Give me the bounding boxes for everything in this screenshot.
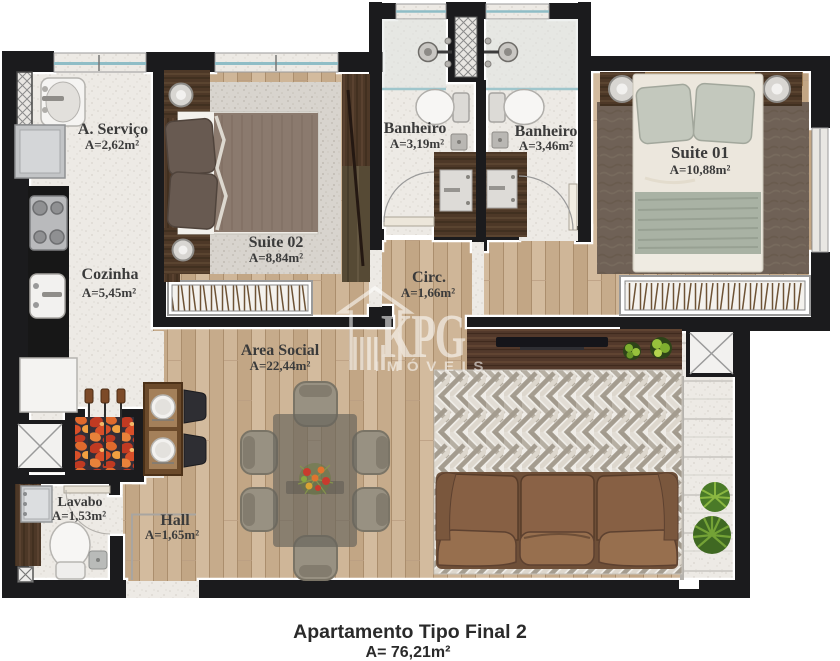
- svg-text:Suite 01: Suite 01: [671, 143, 729, 162]
- svg-text:A=8,84m²: A=8,84m²: [249, 250, 303, 265]
- svg-text:A=3,46m²: A=3,46m²: [519, 138, 573, 153]
- svg-text:A=2,62m²: A=2,62m²: [85, 137, 139, 152]
- svg-text:A=1,53m²: A=1,53m²: [52, 508, 106, 523]
- svg-text:Apartamento Tipo Final 2: Apartamento Tipo Final 2: [293, 621, 527, 643]
- svg-text:Suite 02: Suite 02: [249, 234, 304, 251]
- svg-text:A=3,19m²: A=3,19m²: [390, 136, 444, 151]
- svg-text:IMÓVEIS: IMÓVEIS: [375, 357, 491, 374]
- svg-text:Banheiro: Banheiro: [384, 120, 447, 137]
- svg-text:A= 76,21m²: A= 76,21m²: [366, 644, 451, 661]
- svg-text:A=5,45m²: A=5,45m²: [82, 285, 136, 300]
- svg-text:Area Social: Area Social: [241, 342, 320, 359]
- svg-text:Cozinha: Cozinha: [82, 266, 139, 283]
- svg-text:A=10,88m²: A=10,88m²: [670, 162, 731, 177]
- svg-text:A. Serviço: A. Serviço: [78, 121, 148, 138]
- svg-text:A=1,66m²: A=1,66m²: [401, 285, 455, 300]
- svg-text:A=22,44m²: A=22,44m²: [250, 358, 311, 373]
- svg-text:A=1,65m²: A=1,65m²: [145, 527, 199, 542]
- svg-text:Circ.: Circ.: [412, 269, 446, 286]
